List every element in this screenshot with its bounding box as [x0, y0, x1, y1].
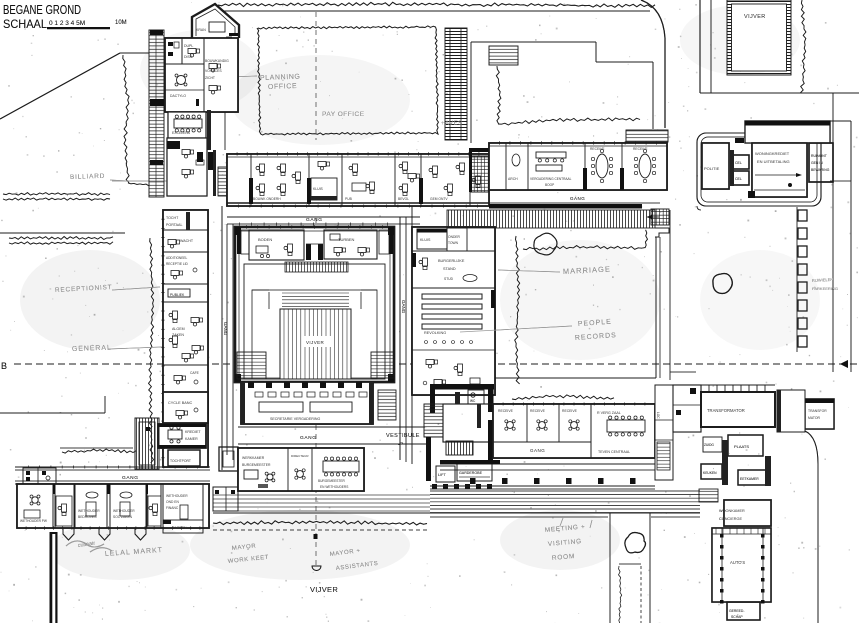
svg-text:VONACES: VONACES	[205, 69, 222, 73]
svg-text:CAFE: CAFE	[190, 371, 200, 375]
svg-text:SCHAAL: SCHAAL	[3, 17, 47, 31]
svg-text:R VERG ZAAL: R VERG ZAAL	[597, 411, 621, 415]
svg-text:BOUWK ONDERH: BOUWK ONDERH	[253, 197, 281, 201]
svg-text:PLANNING: PLANNING	[260, 74, 301, 82]
svg-text:WETHOUDER: WETHOUDER	[166, 494, 188, 498]
svg-text:REVOLKING: REVOLKING	[424, 331, 446, 335]
svg-text:BOOP: BOOP	[545, 183, 554, 187]
svg-text:DUPL: DUPL	[184, 44, 193, 48]
svg-text:PUB: PUB	[345, 197, 353, 201]
svg-text:GANG: GANG	[530, 448, 545, 453]
svg-text:GANG: GANG	[300, 435, 317, 441]
svg-text:WETHOUDER PW: WETHOUDER PW	[20, 519, 47, 523]
svg-text:BODEN: BODEN	[258, 237, 272, 242]
svg-text:WETHOUDER: WETHOUDER	[78, 509, 100, 513]
svg-text:RECEIVE: RECEIVE	[498, 409, 514, 413]
svg-text:RECEIVE: RECEIVE	[633, 147, 648, 151]
svg-text:LOC: LOC	[656, 412, 660, 419]
svg-text:BILLIARD: BILLIARD	[70, 173, 106, 181]
svg-text:TRANSFOR: TRANSFOR	[808, 409, 827, 413]
svg-text:10M: 10M	[115, 20, 127, 26]
svg-text:BEDRIJVEN: BEDRIJVEN	[78, 515, 97, 519]
svg-text:RECEIVE: RECEIVE	[562, 409, 578, 413]
svg-text:ONDER: ONDER	[448, 235, 461, 239]
svg-text:CYCLE BANC: CYCLE BANC	[168, 401, 193, 405]
svg-text:STUD: STUD	[444, 277, 454, 281]
svg-text:EN WETHOUDERS: EN WETHOUDERS	[320, 485, 348, 489]
svg-text:ZAKEN: ZAKEN	[172, 333, 184, 337]
svg-text:VIJVER: VIJVER	[310, 585, 338, 594]
svg-text:SCHAP: SCHAP	[731, 615, 743, 619]
svg-text:BURGEMEESTER: BURGEMEESTER	[318, 479, 345, 483]
svg-text:POLITIE: POLITIE	[704, 166, 720, 171]
svg-text:GANG: GANG	[401, 300, 406, 314]
svg-text:GANG: GANG	[223, 322, 228, 336]
svg-text:KLUIS: KLUIS	[313, 187, 324, 191]
svg-text:VESTIBULE: VESTIBULE	[386, 433, 420, 439]
svg-text:KRAN: KRAN	[196, 28, 206, 32]
svg-text:GANG: GANG	[570, 196, 585, 201]
svg-text:TOCHTPORT: TOCHTPORT	[170, 459, 191, 463]
svg-text:AUTO'S: AUTO'S	[730, 560, 745, 565]
svg-text:RECEIVE: RECEIVE	[530, 409, 546, 413]
svg-text:GEN IN: GEN IN	[811, 161, 823, 165]
svg-text:WOONKAMER: WOONKAMER	[719, 509, 745, 513]
svg-text:BURGEMEESTER: BURGEMEESTER	[242, 463, 271, 467]
svg-text:PARKEERING: PARKEERING	[812, 286, 838, 291]
svg-text:DISK: DISK	[184, 55, 193, 59]
svg-text:GENERAL: GENERAL	[72, 345, 112, 353]
svg-text:CEL: CEL	[735, 177, 742, 181]
svg-text:0 1 2 3 4 5M: 0 1 2 3 4 5M	[49, 20, 85, 27]
svg-text:STAND: STAND	[443, 267, 456, 271]
svg-text:LIFT: LIFT	[438, 473, 446, 477]
svg-text:ADDITIONEEL: ADDITIONEEL	[166, 256, 187, 260]
svg-text:EXCELENS: EXCELENS	[172, 131, 191, 135]
svg-text:EN UITBETALING: EN UITBETALING	[757, 159, 790, 164]
svg-text:DIRECTEUR: DIRECTEUR	[291, 454, 309, 458]
svg-text:RIJWIELEN: RIJWIELEN	[812, 277, 834, 283]
svg-text:GANG: GANG	[122, 475, 139, 481]
svg-text:WC: WC	[470, 399, 476, 403]
svg-text:WETHOUDER: WETHOUDER	[113, 509, 135, 513]
svg-text:GANG: GANG	[306, 217, 323, 223]
svg-text:GARDEROBE: GARDEROBE	[459, 471, 483, 475]
svg-text:TRANSFORMATOR: TRANSFORMATOR	[707, 408, 745, 413]
svg-text:B: B	[1, 361, 7, 371]
svg-text:MATOR: MATOR	[808, 416, 820, 420]
svg-text:ALGEM: ALGEM	[172, 327, 185, 331]
svg-text:GEREED-: GEREED-	[729, 609, 744, 613]
svg-text:BEVOL: BEVOL	[398, 197, 409, 201]
svg-text:GEM ONTV: GEM ONTV	[430, 197, 448, 201]
svg-text:WERKKAMER: WERKKAMER	[242, 456, 265, 460]
svg-text:CONCIERGE: CONCIERGE	[719, 517, 742, 521]
svg-text:KREDIET: KREDIET	[185, 430, 201, 434]
svg-text:ZICHT: ZICHT	[205, 76, 215, 80]
svg-text:TEVEN CENTRAAL: TEVEN CENTRAAL	[598, 450, 630, 454]
svg-text:TOCHT: TOCHT	[166, 216, 179, 220]
svg-text:TURBEN: TURBEN	[338, 237, 355, 242]
svg-text:BEWARING: BEWARING	[811, 168, 830, 172]
svg-text:VIJVER: VIJVER	[744, 14, 766, 20]
svg-text:SECRETARIE VERGADERING: SECRETARIE VERGADERING	[270, 417, 320, 421]
svg-text:+AVES: +AVES	[441, 121, 463, 127]
svg-text:EETKAMER: EETKAMER	[740, 477, 759, 481]
svg-text:WACHT: WACHT	[180, 239, 194, 243]
svg-text:PORTAAL: PORTAAL	[166, 223, 182, 227]
svg-text:BURGERLIJKE: BURGERLIJKE	[438, 259, 465, 263]
svg-text:CEL: CEL	[735, 161, 742, 165]
svg-text:TOWN: TOWN	[448, 241, 459, 245]
svg-text:ZUIDG: ZUIDG	[704, 443, 714, 447]
svg-text:OND EN: OND EN	[166, 500, 179, 504]
svg-text:GARDEN: GARDEN	[172, 526, 187, 530]
svg-text:ARCH: ARCH	[508, 177, 518, 181]
svg-text:PLAATS: PLAATS	[734, 444, 749, 449]
svg-text:RUIMONT: RUIMONT	[811, 154, 827, 158]
svg-text:PAY OFFICE: PAY OFFICE	[322, 111, 365, 118]
svg-text:RECEPTIE LID: RECEPTIE LID	[166, 262, 188, 266]
svg-text:PUBLIEK: PUBLIEK	[170, 293, 185, 297]
svg-text:FINANC: FINANC	[166, 506, 179, 510]
svg-text:KLUIS: KLUIS	[420, 238, 431, 242]
svg-text:DACTYLO: DACTYLO	[170, 94, 186, 98]
svg-text:VIJVER: VIJVER	[306, 340, 325, 345]
svg-text:KEUKEN: KEUKEN	[703, 471, 717, 475]
svg-text:BEGANE GROND: BEGANE GROND	[3, 2, 81, 17]
svg-text:OFFICE: OFFICE	[268, 83, 297, 91]
svg-text:WONINGKREDIET: WONINGKREDIET	[755, 151, 790, 156]
svg-text:KAMER: KAMER	[185, 437, 198, 441]
svg-text:VERGADERING CENTRAAL: VERGADERING CENTRAAL	[530, 177, 572, 181]
svg-text:-P: -P	[398, 442, 404, 448]
svg-text:BOUWKUNDIG: BOUWKUNDIG	[205, 59, 229, 63]
svg-text:RECEIVE: RECEIVE	[590, 147, 605, 151]
